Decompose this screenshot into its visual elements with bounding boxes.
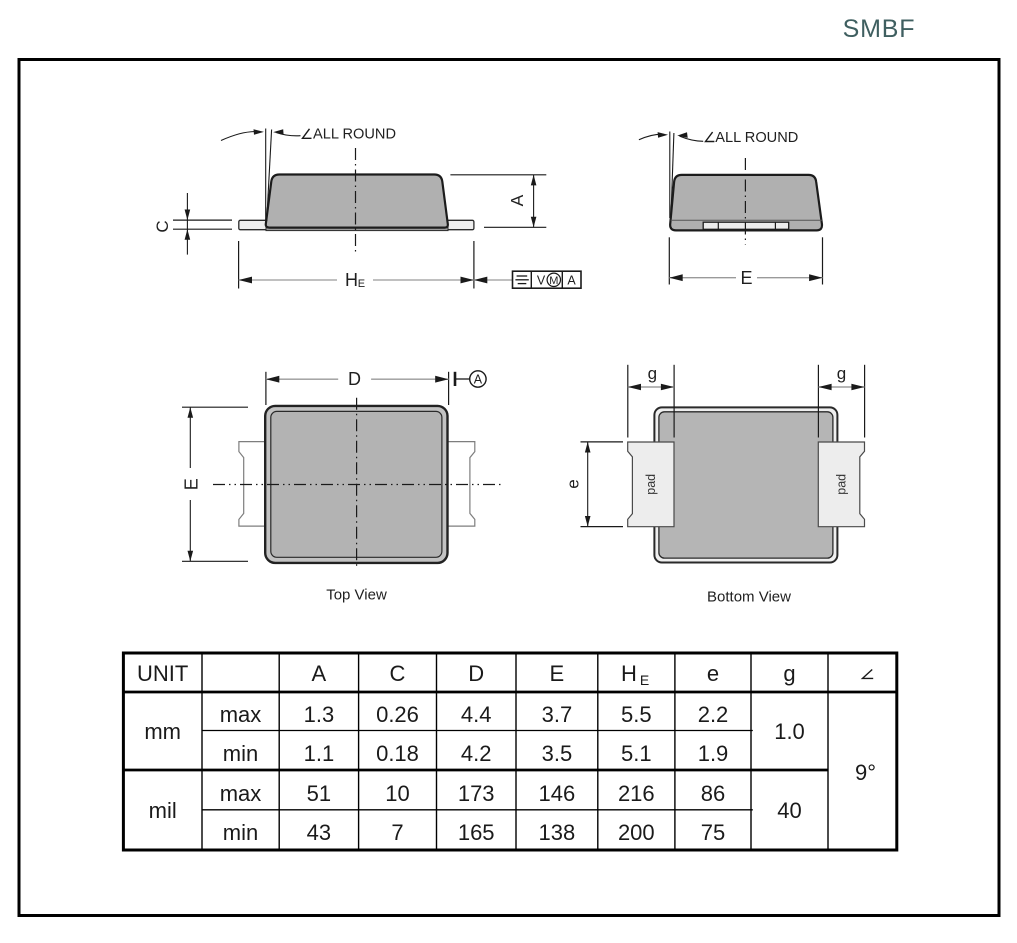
svg-text:pad: pad bbox=[644, 474, 658, 495]
svg-text:5.5: 5.5 bbox=[621, 702, 652, 727]
svg-text:9°: 9° bbox=[855, 760, 876, 785]
svg-text:E: E bbox=[358, 278, 365, 290]
svg-text:200: 200 bbox=[618, 820, 655, 845]
svg-text:10: 10 bbox=[385, 781, 409, 806]
svg-text:Top View: Top View bbox=[326, 587, 387, 604]
svg-text:min: min bbox=[223, 820, 258, 845]
svg-text:40: 40 bbox=[777, 798, 801, 823]
svg-text:UNIT: UNIT bbox=[137, 661, 188, 686]
svg-text:A: A bbox=[312, 661, 327, 686]
svg-text:51: 51 bbox=[307, 781, 331, 806]
svg-text:4.4: 4.4 bbox=[461, 702, 492, 727]
svg-text:min: min bbox=[223, 741, 258, 766]
svg-text:146: 146 bbox=[539, 781, 576, 806]
svg-text:5.1: 5.1 bbox=[621, 741, 652, 766]
svg-text:Bottom View: Bottom View bbox=[707, 589, 791, 606]
svg-text:1.3: 1.3 bbox=[304, 702, 335, 727]
svg-text:2.2: 2.2 bbox=[698, 702, 729, 727]
svg-text:mil: mil bbox=[149, 798, 177, 823]
svg-text:E: E bbox=[181, 478, 201, 490]
svg-text:1.9: 1.9 bbox=[698, 741, 729, 766]
svg-text:3.5: 3.5 bbox=[542, 741, 573, 766]
svg-text:pad: pad bbox=[835, 474, 849, 495]
svg-text:3.7: 3.7 bbox=[542, 702, 573, 727]
svg-text:A: A bbox=[507, 194, 527, 206]
svg-text:86: 86 bbox=[701, 781, 725, 806]
svg-text:H: H bbox=[621, 661, 637, 686]
svg-text:H: H bbox=[345, 270, 358, 290]
svg-text:max: max bbox=[220, 781, 262, 806]
svg-text:43: 43 bbox=[307, 820, 331, 845]
svg-text:D: D bbox=[348, 369, 361, 389]
svg-text:SMBF: SMBF bbox=[843, 15, 916, 43]
svg-text:g: g bbox=[648, 364, 657, 383]
svg-text:0.18: 0.18 bbox=[376, 741, 419, 766]
svg-text:216: 216 bbox=[618, 781, 655, 806]
svg-text:D: D bbox=[468, 661, 484, 686]
svg-text:165: 165 bbox=[458, 820, 495, 845]
svg-text:g: g bbox=[783, 661, 795, 686]
svg-text:C: C bbox=[153, 220, 172, 232]
svg-text:e: e bbox=[707, 661, 719, 686]
svg-text:7: 7 bbox=[391, 820, 403, 845]
svg-text:1.1: 1.1 bbox=[304, 741, 335, 766]
svg-text:A: A bbox=[567, 273, 576, 287]
svg-text:E: E bbox=[640, 672, 649, 688]
svg-text:C: C bbox=[390, 661, 406, 686]
svg-text:mm: mm bbox=[144, 719, 181, 744]
svg-text:0.26: 0.26 bbox=[376, 702, 419, 727]
svg-text:A: A bbox=[474, 373, 483, 387]
svg-text:M: M bbox=[549, 275, 558, 287]
svg-text:E: E bbox=[550, 661, 565, 686]
svg-text:E: E bbox=[740, 268, 752, 288]
svg-text:ALL ROUND: ALL ROUND bbox=[715, 130, 798, 146]
svg-text:173: 173 bbox=[458, 781, 495, 806]
svg-text:V: V bbox=[537, 273, 546, 287]
svg-text:max: max bbox=[220, 702, 262, 727]
svg-text:g: g bbox=[837, 364, 846, 383]
svg-text:75: 75 bbox=[701, 820, 725, 845]
svg-text:1.0: 1.0 bbox=[774, 719, 805, 744]
svg-text:ALL ROUND: ALL ROUND bbox=[313, 127, 396, 143]
svg-text:e: e bbox=[564, 479, 583, 488]
svg-text:4.2: 4.2 bbox=[461, 741, 492, 766]
svg-text:138: 138 bbox=[539, 820, 576, 845]
